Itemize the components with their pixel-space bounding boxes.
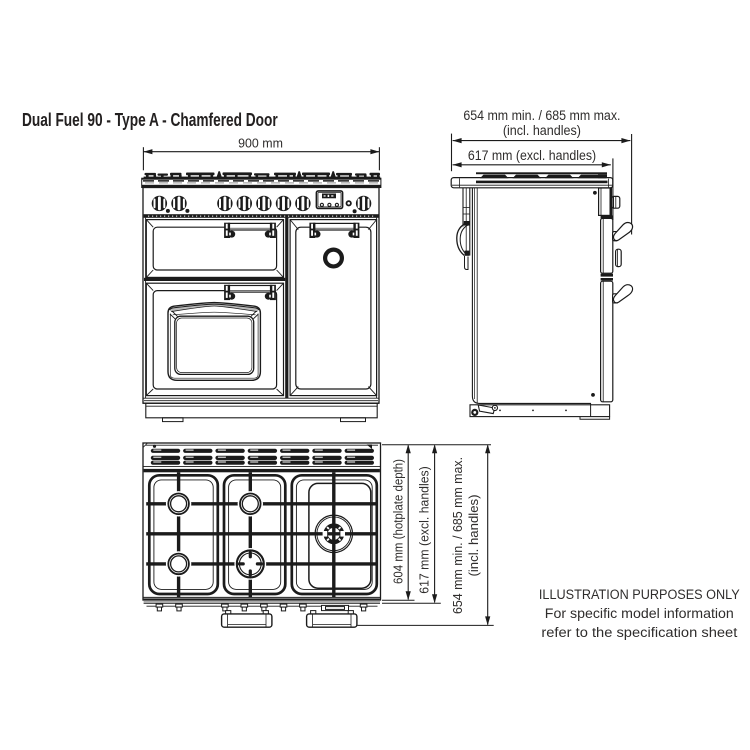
- svg-text:refer to the specification she: refer to the specification sheet: [541, 625, 737, 641]
- svg-text:604 mm (hotplate depth): 604 mm (hotplate depth): [391, 459, 406, 584]
- svg-text:617 mm (excl. handles): 617 mm (excl. handles): [468, 147, 596, 163]
- svg-text:(incl. handles): (incl. handles): [503, 122, 581, 138]
- svg-text:Dual Fuel 90 - Type A - Chamfe: Dual Fuel 90 - Type A - Chamfered Door: [22, 110, 278, 130]
- svg-text:617 mm (excl. handles): 617 mm (excl. handles): [416, 466, 432, 593]
- svg-text:654 mm min. / 685 mm max.: 654 mm min. / 685 mm max.: [463, 108, 620, 124]
- svg-text:For specific model information: For specific model information: [545, 605, 734, 621]
- svg-text:ILLUSTRATION PURPOSES ONLY: ILLUSTRATION PURPOSES ONLY: [539, 586, 740, 602]
- svg-text:900 mm: 900 mm: [238, 136, 283, 150]
- svg-text:654 mm min. / 685 mm max.: 654 mm min. / 685 mm max.: [450, 457, 465, 614]
- svg-text:(incl. handles): (incl. handles): [466, 494, 481, 576]
